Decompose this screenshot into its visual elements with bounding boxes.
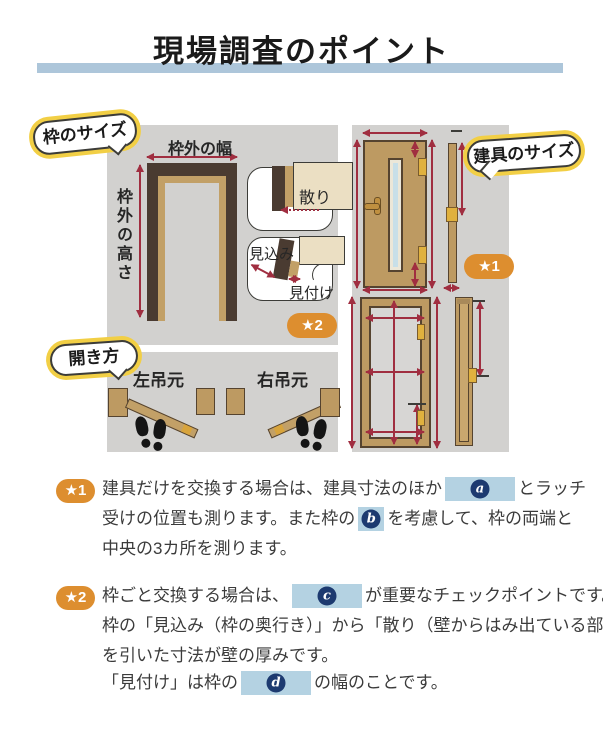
answer-blank-c: c — [292, 584, 362, 608]
marker-d: d — [267, 674, 286, 693]
chiri-label: 散り — [299, 184, 331, 208]
wall-block — [320, 388, 340, 417]
opening-bubble: 開き方 — [49, 339, 139, 377]
measure-tick — [473, 300, 485, 302]
edge-hinge-position-arrow — [461, 143, 463, 215]
note2-text: 「見付け」は枠の — [102, 673, 238, 692]
answer-blank-b: b — [358, 507, 384, 531]
note2-line4: 「見付け」は枠のdの幅のことです。 — [102, 670, 448, 696]
door-edge — [181, 424, 192, 435]
left-hinged-label: 左吊元 — [133, 366, 184, 391]
frame-width-arrow-top — [366, 317, 424, 319]
note2-line1: 枠ごと交換する場合は、cが重要なチェックポイントです。 — [102, 583, 603, 609]
mitsuke-label: 見付け — [289, 282, 334, 303]
note2-text: 枠の「見込み（枠の奥行き）」から「散り（壁からはみ出ている部分）」 — [102, 616, 603, 635]
door-hinge — [418, 158, 427, 176]
note1-line1: 建具だけを交換する場合は、建具寸法のほかaとラッチ — [102, 476, 586, 502]
page-title: 現場調査のポイント — [0, 26, 603, 71]
note2-line3: を引いた寸法が壁の厚みです。 — [102, 643, 338, 669]
note2-text: の幅のことです。 — [314, 673, 448, 692]
marker-b: b — [362, 510, 381, 529]
wall-block — [196, 388, 215, 415]
side-hinge — [468, 368, 477, 383]
frame-outer-height-label: 枠外の高さ — [110, 188, 134, 328]
side-hinge-position-arrow — [479, 302, 481, 376]
measure-tick — [451, 130, 462, 132]
frame-size-bubble: 枠のサイズ — [32, 112, 139, 157]
star1-badge: ★1 — [464, 254, 514, 279]
star2-badge: ★2 — [287, 313, 337, 338]
frame-width-arrow-middle — [366, 371, 424, 373]
door-glass-panel — [388, 158, 403, 272]
right-hinged-label: 右吊元 — [257, 366, 308, 391]
frame-right-jamb — [226, 163, 237, 321]
answer-blank-a: a — [445, 477, 515, 501]
measure-tick — [408, 403, 426, 405]
note1-text: とラッチ — [518, 479, 586, 498]
note1-text: を考慮して、枠の両端と — [387, 509, 573, 528]
door-width-arrow-bottom — [363, 289, 427, 291]
door-hinge — [418, 246, 427, 264]
note1-text: 受けの位置も測ります。また枠の — [102, 509, 355, 528]
frame-side-cap — [457, 299, 470, 304]
frame-head-inner — [158, 176, 226, 183]
wall-block — [226, 388, 245, 415]
note2-star-badge: ★2 — [56, 586, 95, 610]
mikomi-label: 見込み — [249, 243, 294, 264]
edge-hinge — [446, 207, 458, 222]
marker-c: c — [318, 587, 337, 606]
wall-section-2 — [299, 236, 345, 265]
chiri-arrow — [281, 209, 319, 211]
frame-head — [147, 163, 237, 176]
chiri-frame-piece — [272, 166, 285, 211]
note1-star-badge: ★1 — [56, 479, 95, 503]
door-width-arrow-top — [363, 132, 427, 134]
note1-text: 建具だけを交換する場合は、建具寸法のほか — [102, 479, 442, 498]
note2-text: 枠ごと交換する場合は、 — [102, 586, 289, 605]
fitting-size-bubble: 建具のサイズ — [466, 133, 582, 174]
hinge-offset-arrow-bottom — [414, 263, 416, 286]
frame-height-arrow-right — [436, 297, 438, 448]
note2-line2: 枠の「見込み（枠の奥行き）」から「散り（壁からはみ出ている部分）」 — [102, 613, 603, 639]
edge-thickness-arrow — [444, 287, 459, 289]
marker-a: a — [471, 480, 490, 499]
wall-block — [108, 388, 128, 417]
frame-left-inner — [158, 183, 165, 321]
document-page: 現場調査のポイント 枠のサイズ 枠外の幅 枠外の高さ 散り 見込み 見付け ★2… — [0, 0, 603, 737]
frame-left-jamb — [147, 163, 158, 321]
note2-text: が重要なチェックポイントです。 — [365, 586, 603, 605]
frame-hinge — [417, 410, 425, 426]
answer-blank-d: d — [241, 671, 311, 695]
door-handle-lever — [364, 203, 380, 210]
frame-right-inner — [219, 183, 226, 321]
height-arrow — [139, 165, 141, 317]
door-height-arrow-left — [356, 140, 358, 288]
hinge-offset-arrow-top — [414, 142, 416, 157]
mitsuke-arrow — [289, 278, 300, 280]
note1-line3: 中央の3カ所を測ります。 — [102, 536, 297, 562]
note2-text: を引いた寸法が壁の厚みです。 — [102, 646, 338, 665]
frame-outer-width-label: 枠外の幅 — [155, 135, 245, 159]
note1-line2: 受けの位置も測ります。また枠のbを考慮して、枠の両端と — [102, 506, 573, 532]
chiri-frame-inner — [285, 166, 293, 207]
door-height-arrow-right — [431, 140, 433, 288]
note1-text: 中央の3カ所を測ります。 — [102, 539, 297, 558]
frame-height-arrow-left — [351, 297, 353, 448]
frame-hinge — [417, 324, 425, 340]
